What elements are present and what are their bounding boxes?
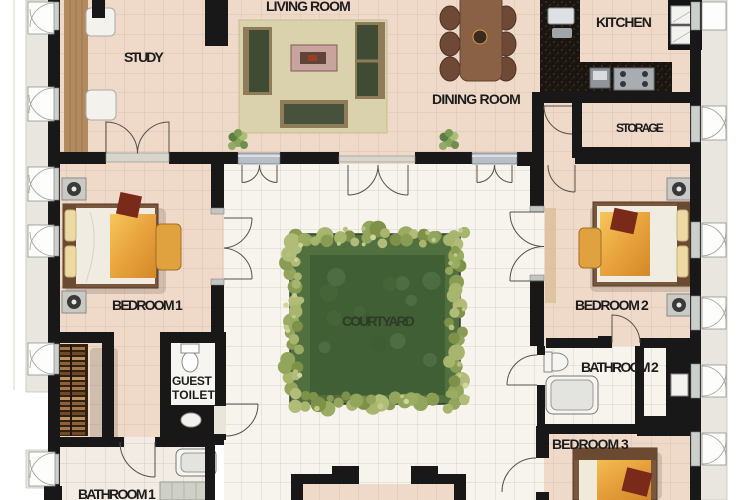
svg-text:BEDROOM 3: BEDROOM 3	[552, 436, 629, 452]
svg-text:LIVING ROOM: LIVING ROOM	[266, 0, 351, 14]
svg-text:COURTYARD: COURTYARD	[342, 313, 415, 329]
svg-text:STORAGE: STORAGE	[616, 121, 664, 135]
svg-text:BATHROOM 2: BATHROOM 2	[581, 359, 659, 375]
svg-text:BATHROOM 1: BATHROOM 1	[78, 486, 156, 500]
svg-text:KITCHEN: KITCHEN	[596, 14, 652, 30]
svg-text:GUEST: GUEST	[172, 374, 212, 388]
svg-text:STUDY: STUDY	[124, 49, 164, 65]
svg-text:TOILET: TOILET	[172, 388, 215, 402]
svg-text:BEDROOM 2: BEDROOM 2	[575, 297, 649, 313]
svg-text:BEDROOM 1: BEDROOM 1	[112, 297, 183, 313]
svg-text:DINING ROOM: DINING ROOM	[432, 91, 521, 107]
